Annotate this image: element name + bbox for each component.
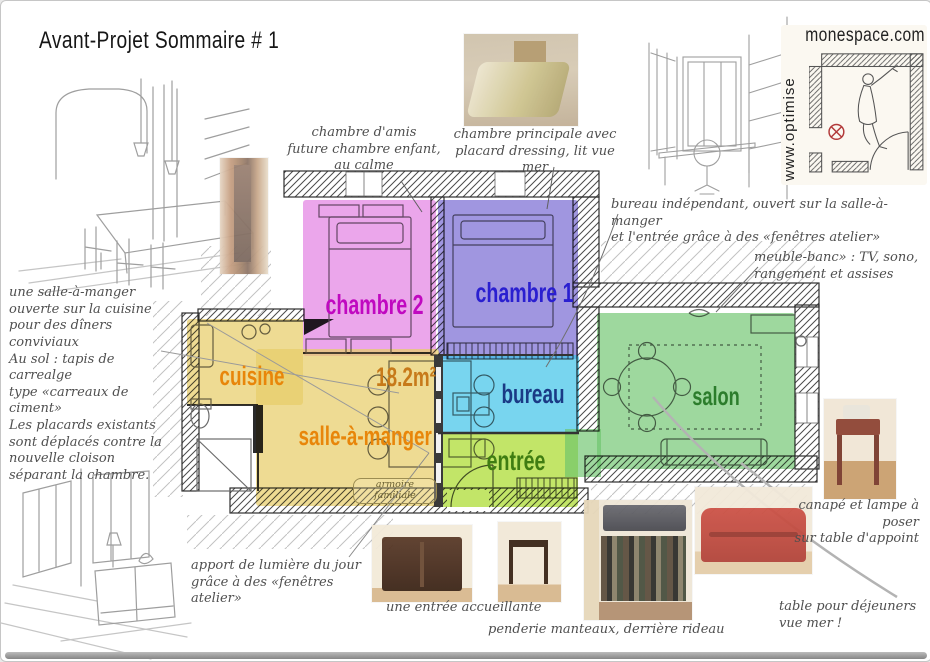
photo-detail [603, 505, 685, 531]
logo-monespace: monespace.com www.optimise [781, 25, 927, 185]
photo-doorway [220, 158, 268, 274]
photo-detail [599, 602, 692, 620]
note-entree: une entrée accueillante [386, 600, 546, 617]
note-bureau: bureau indépendant, ouvert sur la salle-… [611, 197, 916, 247]
note-meuble-banc: meuble-banc» : TV, sono, rangement et as… [754, 250, 919, 283]
note-salle-a-manger: une salle-à-manger ouverte sur la cuisin… [9, 285, 174, 485]
note-chambre-principale: chambre principale avec placard dressing… [449, 127, 621, 177]
room-label-chambre1: chambre 1 [476, 277, 567, 309]
note-chambre-amis: chambre d'amis future chambre enfant, au… [279, 125, 449, 175]
photo-detail [601, 536, 685, 601]
room-label-chambre2: chambre 2 [326, 289, 417, 321]
page-title: Avant-Projet Sommaire # 1 [39, 27, 279, 55]
presentation-board: Avant-Projet Sommaire # 1 cuisine salle-… [0, 0, 930, 662]
logo-site-text: monespace.com [805, 25, 925, 47]
photo-bedroom [464, 34, 578, 126]
logo-tagline-text: www.optimise [781, 51, 798, 181]
logo-room-sketch [809, 51, 925, 179]
room-label-salon: salon [681, 381, 751, 412]
photo-detail [509, 540, 548, 585]
photo-appoint-table [824, 399, 896, 499]
photo-detail [584, 500, 599, 620]
photo-detail [836, 419, 881, 435]
photo-detail [466, 62, 571, 117]
room-label-entree: entrée [474, 445, 558, 477]
photo-detail [234, 165, 250, 262]
room-label-cuisine: cuisine [214, 361, 291, 392]
area-label: 18.2m² [371, 362, 441, 393]
sketch-room-corner [1, 469, 191, 659]
photo-detail [420, 542, 424, 587]
sketch-office [649, 17, 787, 199]
photo-detail [837, 435, 879, 485]
overlay-chambre2 [303, 200, 436, 356]
note-table-dejeuners: table pour déjeuners vue mer ! [779, 599, 919, 632]
frame-bottom-edge [5, 652, 927, 659]
photo-closet [584, 500, 692, 620]
room-label-salle: salle-à-manger [299, 421, 418, 452]
armoire-note: armoire familiale [353, 478, 437, 504]
room-label-bureau: bureau [491, 379, 575, 410]
photo-commode [372, 525, 472, 602]
photo-detail [843, 405, 870, 419]
photo-side-table [498, 522, 561, 602]
note-lumiere: apport de lumière du jour grâce à des «f… [191, 558, 386, 608]
note-penderie: penderie manteaux, derrière rideau [488, 622, 733, 639]
overlay-salon-corridor [565, 429, 601, 477]
note-canape: canapé et lampe à poser sur table d'appo… [771, 498, 919, 548]
